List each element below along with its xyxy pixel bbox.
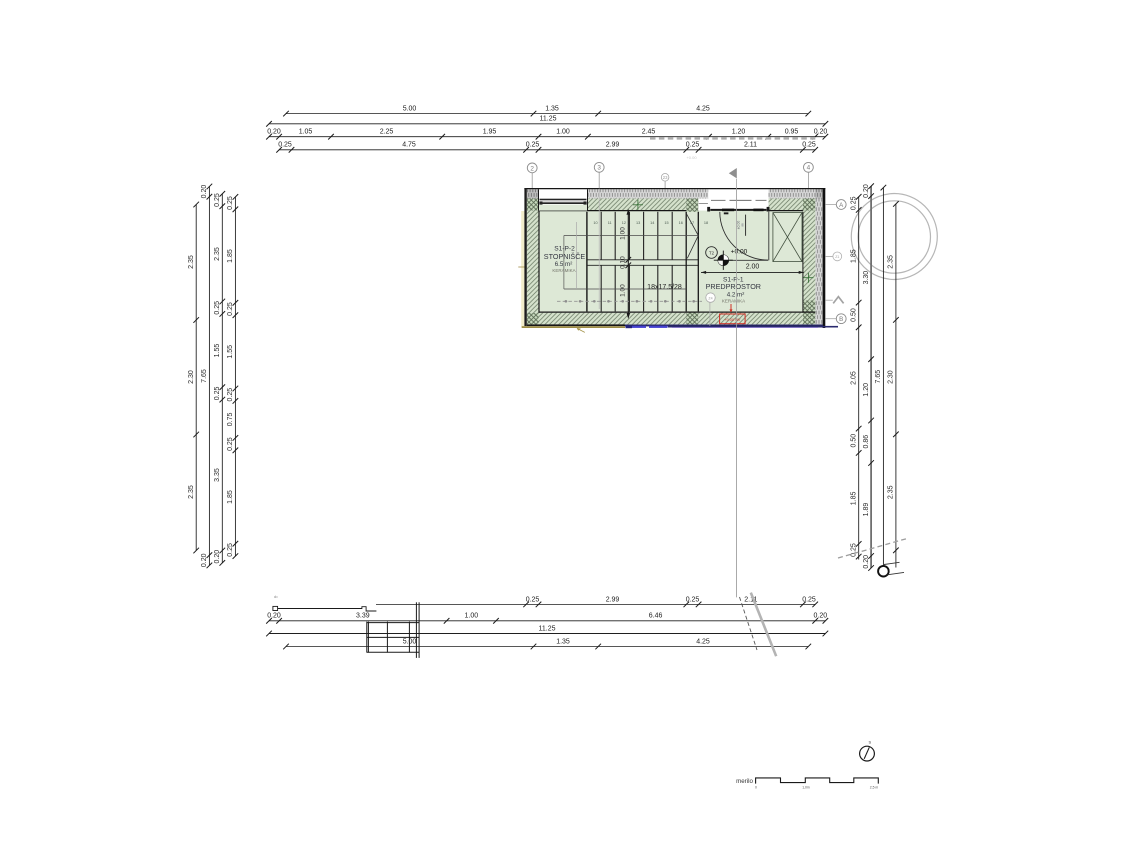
svg-text:0.25: 0.25 bbox=[214, 301, 221, 315]
svg-text:0.10: 0.10 bbox=[619, 256, 626, 269]
svg-text:1.05: 1.05 bbox=[299, 129, 313, 136]
svg-text:merilo: merilo bbox=[736, 778, 753, 785]
svg-text:1.85: 1.85 bbox=[851, 249, 858, 263]
svg-text:+0.00: +0.00 bbox=[731, 249, 748, 256]
svg-text:2.00: 2.00 bbox=[746, 264, 760, 271]
svg-text:0.25: 0.25 bbox=[214, 386, 221, 400]
svg-text:+0.00 NV: +0.00 NV bbox=[724, 318, 740, 322]
svg-text:12: 12 bbox=[622, 221, 626, 225]
svg-text:STOPNIŠČE: STOPNIŠČE bbox=[544, 252, 586, 261]
svg-text:0.25: 0.25 bbox=[686, 142, 700, 149]
svg-text:0.25: 0.25 bbox=[227, 196, 234, 210]
svg-text:0.75: 0.75 bbox=[227, 412, 234, 426]
svg-text:+0.00: +0.00 bbox=[686, 155, 697, 160]
svg-text:2.35: 2.35 bbox=[214, 247, 221, 261]
svg-text:4.25: 4.25 bbox=[696, 638, 710, 645]
svg-text:1.00: 1.00 bbox=[619, 284, 626, 297]
svg-text:1.85: 1.85 bbox=[851, 491, 858, 505]
svg-text:2.45: 2.45 bbox=[642, 129, 656, 136]
svg-text:1.00: 1.00 bbox=[556, 129, 570, 136]
svg-text:1.55: 1.55 bbox=[227, 345, 234, 359]
svg-text:2.99: 2.99 bbox=[606, 142, 620, 149]
svg-text:23: 23 bbox=[663, 175, 668, 180]
svg-text:16: 16 bbox=[679, 221, 683, 225]
svg-text:Z1: Z1 bbox=[835, 255, 839, 259]
svg-text:1.85: 1.85 bbox=[227, 249, 234, 263]
svg-text:0.20: 0.20 bbox=[863, 555, 870, 569]
svg-text:0.50: 0.50 bbox=[851, 434, 858, 448]
svg-text:0.25: 0.25 bbox=[227, 302, 234, 316]
svg-text:2.30: 2.30 bbox=[188, 370, 195, 384]
svg-text:KERAMIKA: KERAMIKA bbox=[552, 268, 575, 273]
svg-text:0.25: 0.25 bbox=[686, 596, 700, 603]
svg-text:0.20: 0.20 bbox=[863, 184, 870, 198]
svg-text:0.20: 0.20 bbox=[214, 550, 221, 564]
svg-text:1.85: 1.85 bbox=[227, 490, 234, 504]
svg-text:4.75: 4.75 bbox=[402, 142, 416, 149]
svg-text:3.35: 3.35 bbox=[214, 468, 221, 482]
svg-text:7.65: 7.65 bbox=[201, 369, 208, 383]
svg-text:2.35: 2.35 bbox=[188, 255, 195, 269]
svg-text:11.25: 11.25 bbox=[540, 116, 557, 123]
svg-text:2.11: 2.11 bbox=[744, 142, 757, 149]
svg-text:0.20: 0.20 bbox=[813, 613, 827, 620]
svg-text:1.35: 1.35 bbox=[556, 638, 570, 645]
svg-text:7.65: 7.65 bbox=[875, 370, 882, 384]
svg-text:2.99: 2.99 bbox=[606, 596, 620, 603]
svg-text:2.35: 2.35 bbox=[888, 255, 895, 269]
svg-text:2.35: 2.35 bbox=[888, 485, 895, 499]
svg-text:6.5 m²: 6.5 m² bbox=[555, 261, 573, 268]
svg-text:14: 14 bbox=[650, 221, 654, 225]
svg-text:0: 0 bbox=[755, 786, 757, 790]
svg-text:0.20: 0.20 bbox=[201, 185, 208, 199]
svg-text:0.25: 0.25 bbox=[802, 596, 816, 603]
svg-text:d=: d= bbox=[274, 595, 278, 599]
svg-text:0.25: 0.25 bbox=[214, 193, 221, 207]
svg-text:1.00: 1.00 bbox=[619, 227, 626, 240]
svg-text:1.20: 1.20 bbox=[863, 383, 870, 397]
svg-text:0.20: 0.20 bbox=[267, 613, 281, 620]
svg-text:0.20: 0.20 bbox=[814, 129, 828, 136]
svg-text:0.50: 0.50 bbox=[851, 308, 858, 322]
svg-text:T2: T2 bbox=[709, 251, 715, 256]
svg-text:3.39: 3.39 bbox=[356, 613, 370, 620]
svg-text:1.35: 1.35 bbox=[545, 105, 559, 112]
svg-text:15: 15 bbox=[664, 221, 668, 225]
svg-text:0.20: 0.20 bbox=[267, 129, 281, 136]
svg-text:0.86: 0.86 bbox=[863, 435, 870, 449]
svg-text:2.35: 2.35 bbox=[188, 485, 195, 499]
svg-text:1.55: 1.55 bbox=[214, 344, 221, 358]
svg-text:0.25: 0.25 bbox=[526, 142, 540, 149]
svg-text:4.25: 4.25 bbox=[696, 105, 710, 112]
svg-text:1.89: 1.89 bbox=[863, 503, 870, 517]
svg-text:4.2 m²: 4.2 m² bbox=[727, 292, 745, 299]
svg-text:0.25: 0.25 bbox=[227, 543, 234, 557]
svg-text:18: 18 bbox=[704, 221, 708, 225]
svg-text:1.20: 1.20 bbox=[732, 129, 746, 136]
svg-text:0.95: 0.95 bbox=[785, 129, 799, 136]
svg-text:11.25: 11.25 bbox=[539, 625, 556, 632]
svg-text:1,0m: 1,0m bbox=[802, 786, 810, 790]
svg-text:0.25: 0.25 bbox=[526, 596, 540, 603]
svg-text:2.25: 2.25 bbox=[380, 129, 394, 136]
svg-text:0.25: 0.25 bbox=[851, 196, 858, 210]
svg-text:1.95: 1.95 bbox=[483, 129, 497, 136]
svg-text:2.30: 2.30 bbox=[888, 370, 895, 384]
svg-text:3.30: 3.30 bbox=[863, 271, 870, 285]
svg-text:10: 10 bbox=[593, 221, 597, 225]
svg-text:2.05: 2.05 bbox=[851, 371, 858, 385]
svg-text:6.46: 6.46 bbox=[649, 613, 663, 620]
svg-text:5.00: 5.00 bbox=[403, 105, 417, 112]
svg-text:0.25: 0.25 bbox=[278, 142, 292, 149]
svg-text:1.00: 1.00 bbox=[464, 613, 478, 620]
svg-text:17: 17 bbox=[690, 221, 694, 225]
svg-text:4: 4 bbox=[807, 165, 811, 172]
svg-text:2,5 m: 2,5 m bbox=[870, 786, 879, 790]
svg-text:98: 98 bbox=[740, 223, 744, 227]
svg-text:0.20: 0.20 bbox=[201, 553, 208, 567]
svg-text:Z4: Z4 bbox=[708, 296, 712, 300]
svg-text:PREDPROSTOR: PREDPROSTOR bbox=[706, 282, 761, 291]
svg-text:0.25: 0.25 bbox=[851, 543, 858, 557]
svg-text:0.25: 0.25 bbox=[227, 388, 234, 402]
svg-text:0.25: 0.25 bbox=[227, 437, 234, 451]
svg-text:KERAMIKA: KERAMIKA bbox=[722, 299, 745, 304]
svg-text:2: 2 bbox=[530, 165, 534, 172]
svg-text:3: 3 bbox=[597, 165, 601, 172]
svg-text:18x17.5/28: 18x17.5/28 bbox=[647, 284, 682, 291]
svg-text:0.25: 0.25 bbox=[802, 142, 816, 149]
svg-text:11: 11 bbox=[608, 221, 612, 225]
svg-text:13: 13 bbox=[636, 221, 640, 225]
svg-text:S: S bbox=[868, 740, 871, 745]
svg-text:B: B bbox=[839, 316, 843, 323]
